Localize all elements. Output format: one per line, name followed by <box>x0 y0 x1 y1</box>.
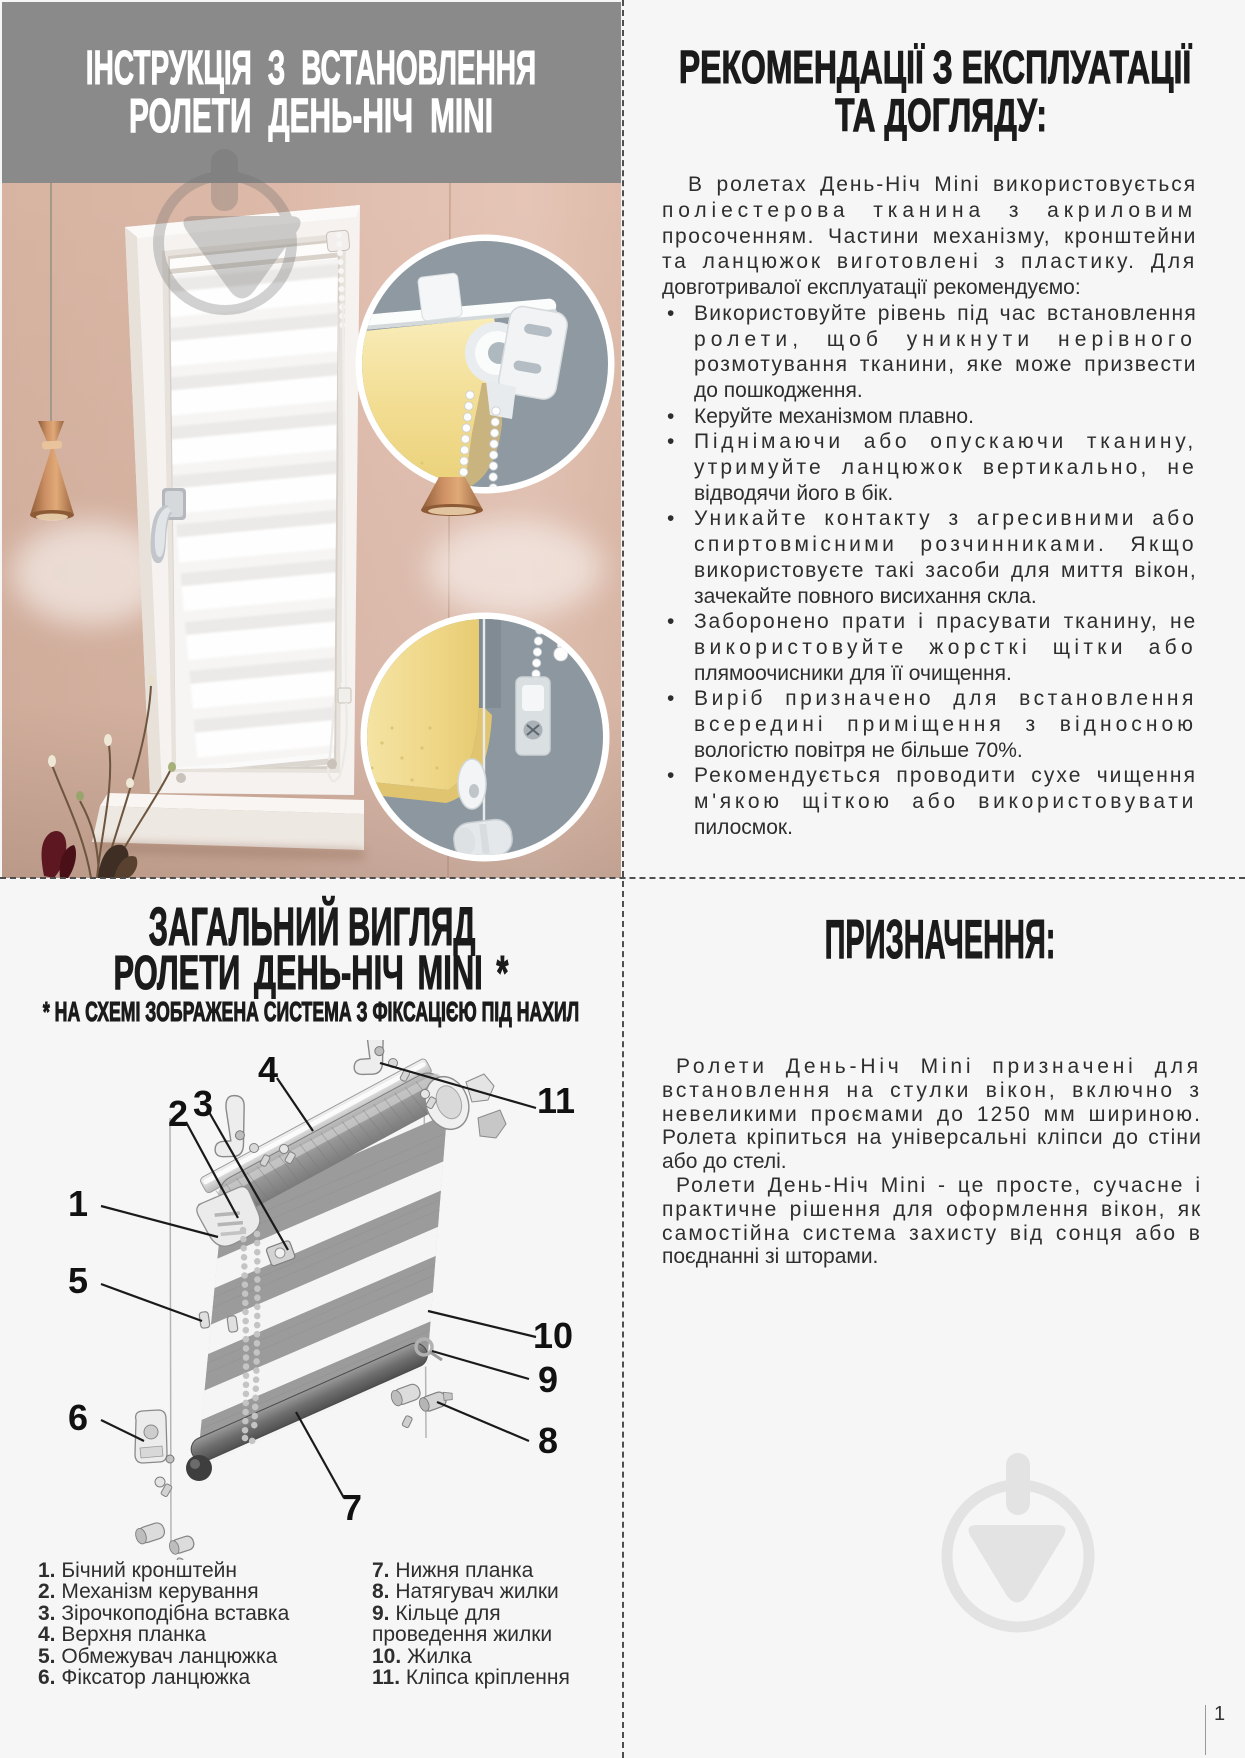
svg-text:2: 2 <box>168 1093 188 1134</box>
svg-text:3: 3 <box>193 1083 213 1124</box>
svg-text:1: 1 <box>68 1183 88 1224</box>
svg-text:8: 8 <box>538 1420 558 1461</box>
svg-text:4: 4 <box>258 1049 278 1090</box>
svg-text:7: 7 <box>342 1487 362 1528</box>
svg-text:10: 10 <box>533 1315 573 1356</box>
svg-text:6: 6 <box>68 1397 88 1438</box>
svg-text:11: 11 <box>537 1080 575 1121</box>
svg-text:5: 5 <box>68 1260 88 1301</box>
svg-text:9: 9 <box>538 1359 558 1400</box>
